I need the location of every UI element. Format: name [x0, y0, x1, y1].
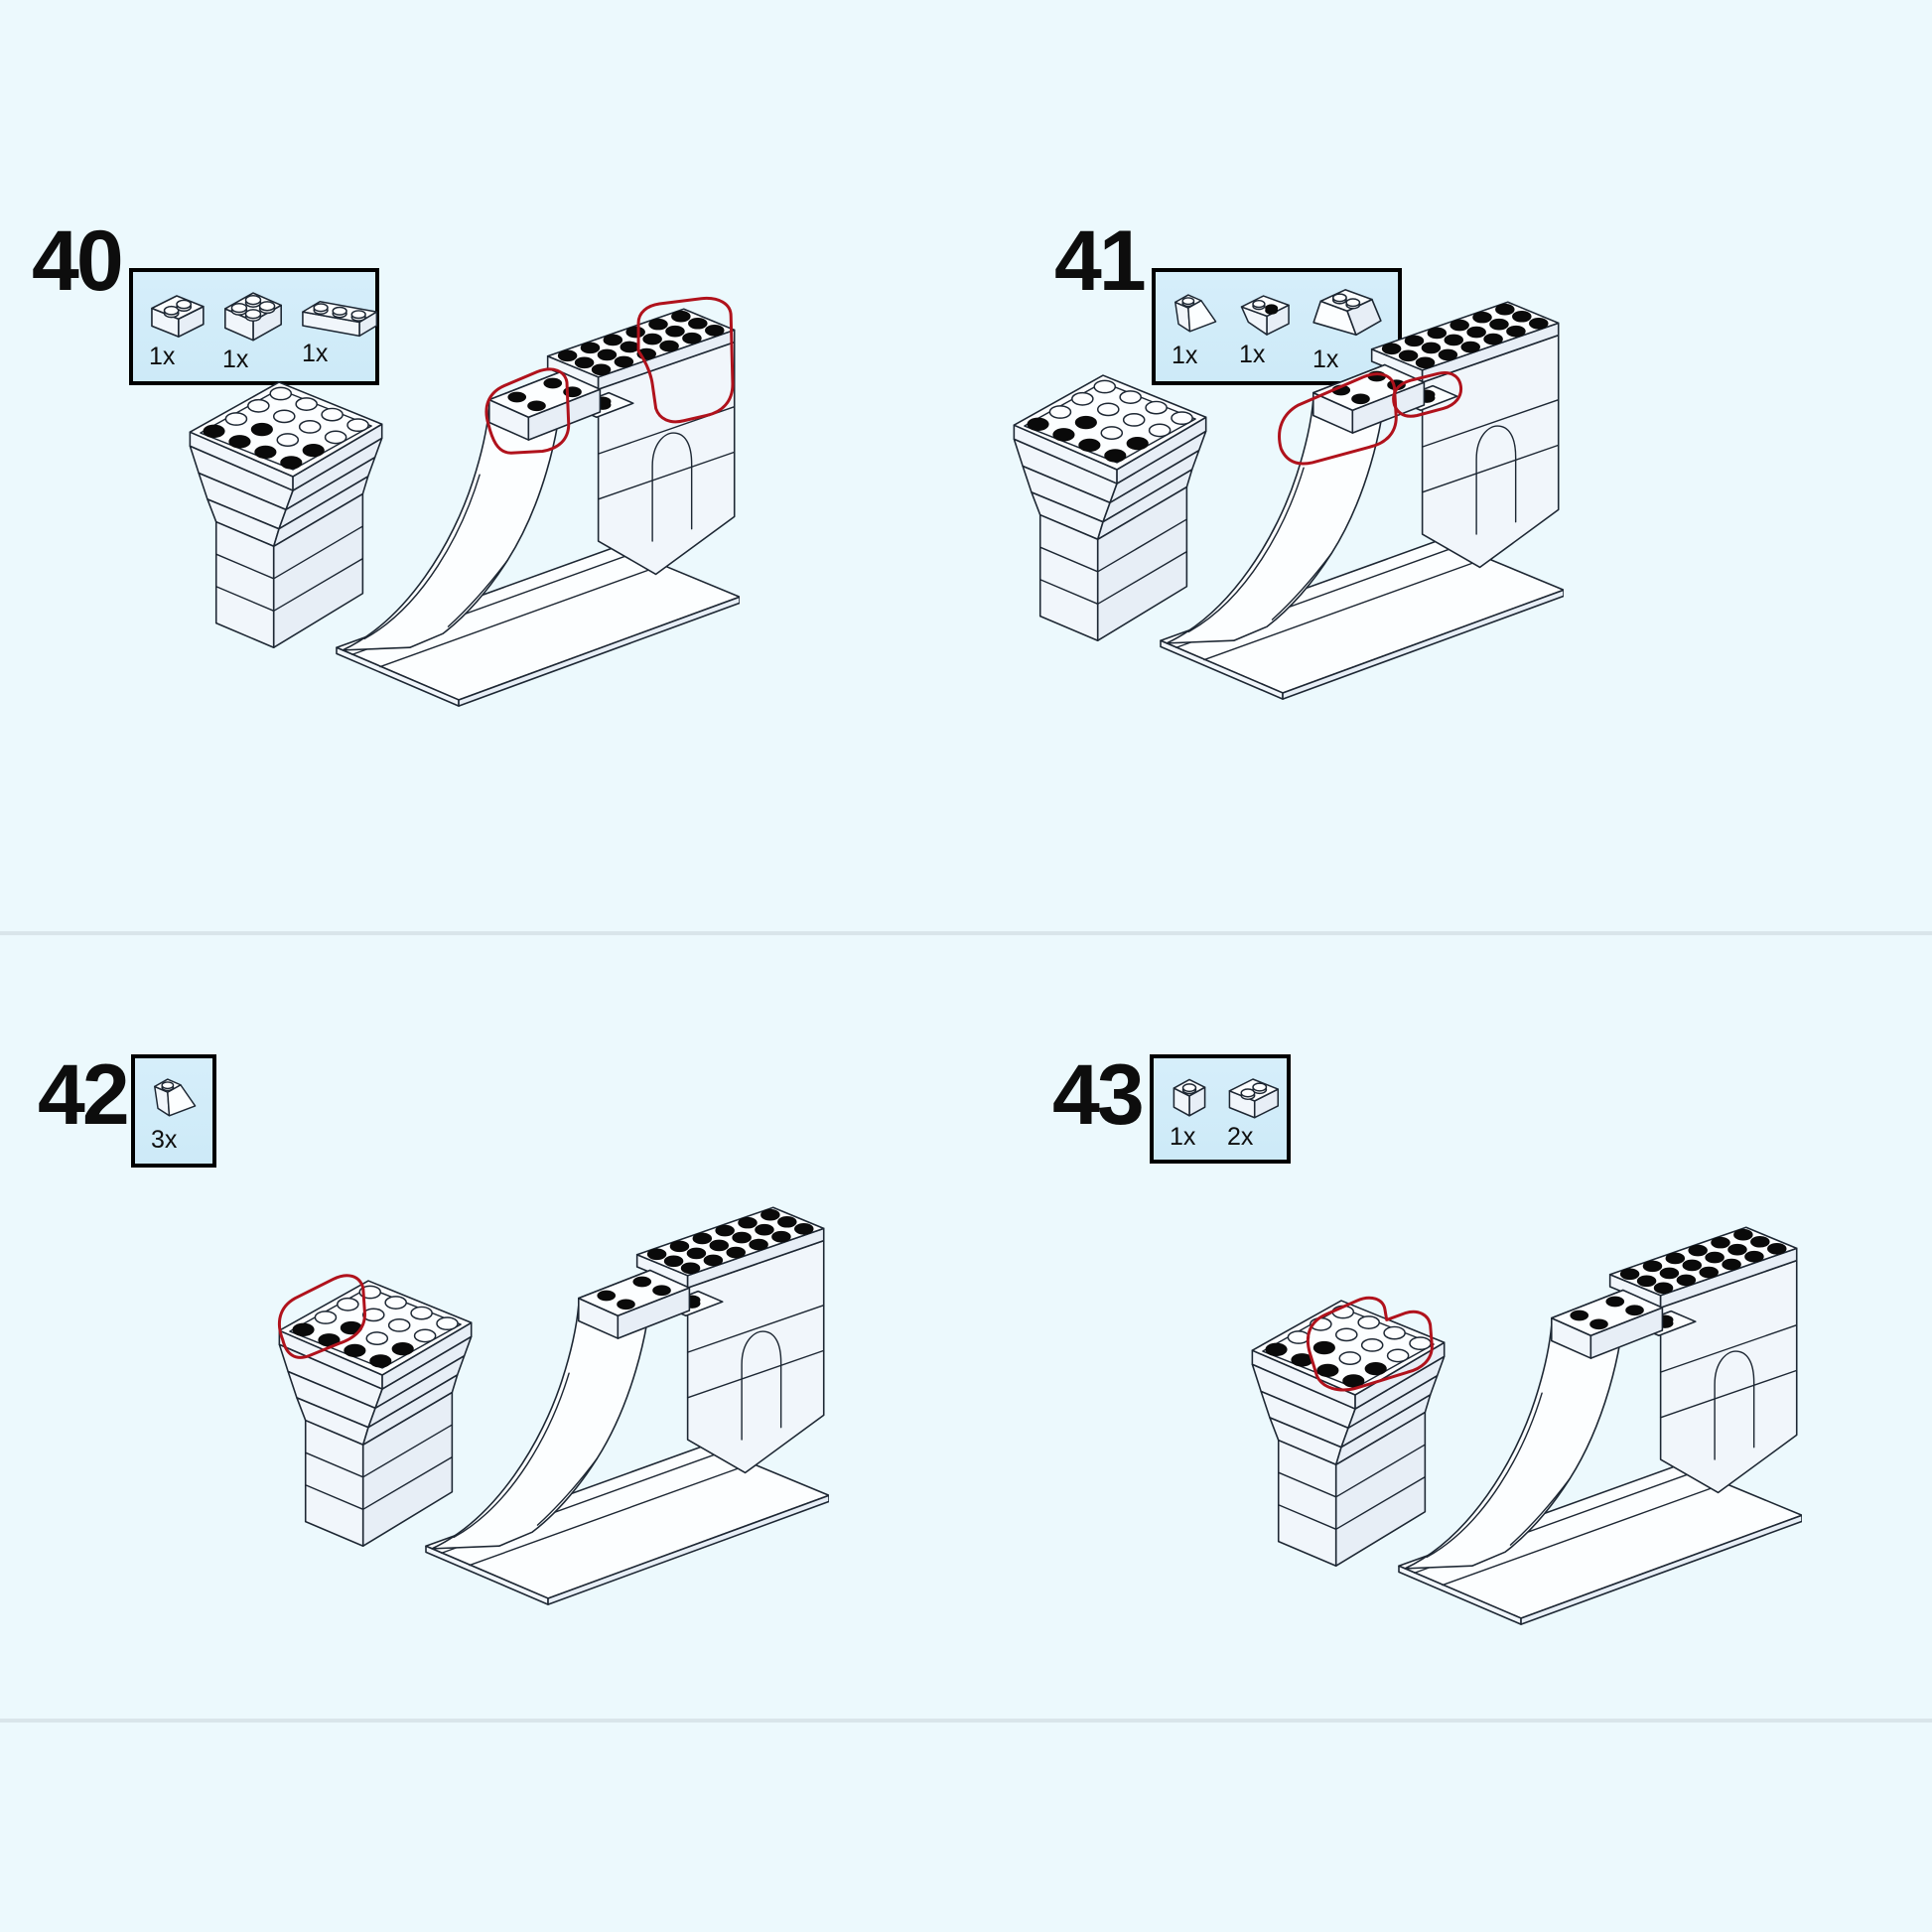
model-diagram-step-40: [164, 253, 740, 707]
part-item: 3x: [145, 1068, 207, 1155]
model-diagram-step-43: [1226, 1172, 1802, 1625]
brick-1x1-icon: [1164, 1067, 1215, 1123]
parts-callout-box: 3x: [131, 1054, 216, 1168]
model-diagram-step-42: [253, 1152, 829, 1605]
slope-45-1x2-icon: [145, 1068, 207, 1126]
brick-1x2-icon: [1221, 1067, 1285, 1123]
part-count: 3x: [151, 1126, 177, 1155]
section-divider-top: [0, 931, 1932, 935]
part-count: 1x: [1170, 1123, 1195, 1152]
parts-callout-box: 1x 2x: [1150, 1054, 1291, 1164]
part-item: 1x: [1164, 1067, 1215, 1152]
step-number: 40: [32, 218, 121, 304]
step-number: 42: [38, 1052, 127, 1138]
instruction-sheet: 40 1x 1x 1x 41: [0, 0, 1932, 1932]
step-number: 43: [1052, 1052, 1142, 1138]
section-divider-bottom: [0, 1719, 1932, 1723]
model-diagram-step-41: [988, 246, 1564, 700]
part-count: 2x: [1227, 1123, 1253, 1152]
part-item: 2x: [1221, 1067, 1285, 1152]
